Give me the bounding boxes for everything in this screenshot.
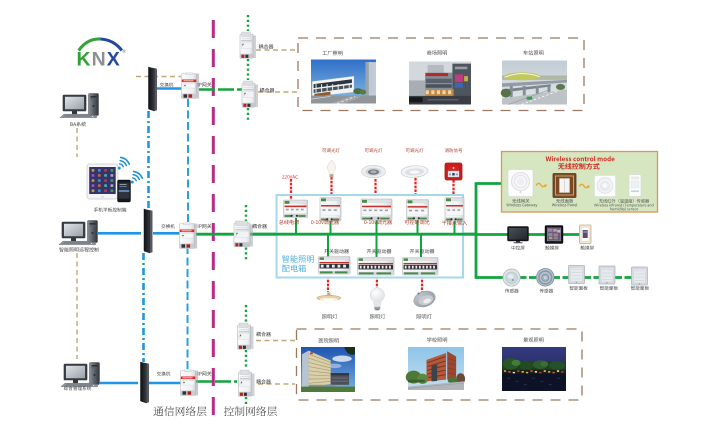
- svg-text:KNX: KNX: [77, 49, 121, 71]
